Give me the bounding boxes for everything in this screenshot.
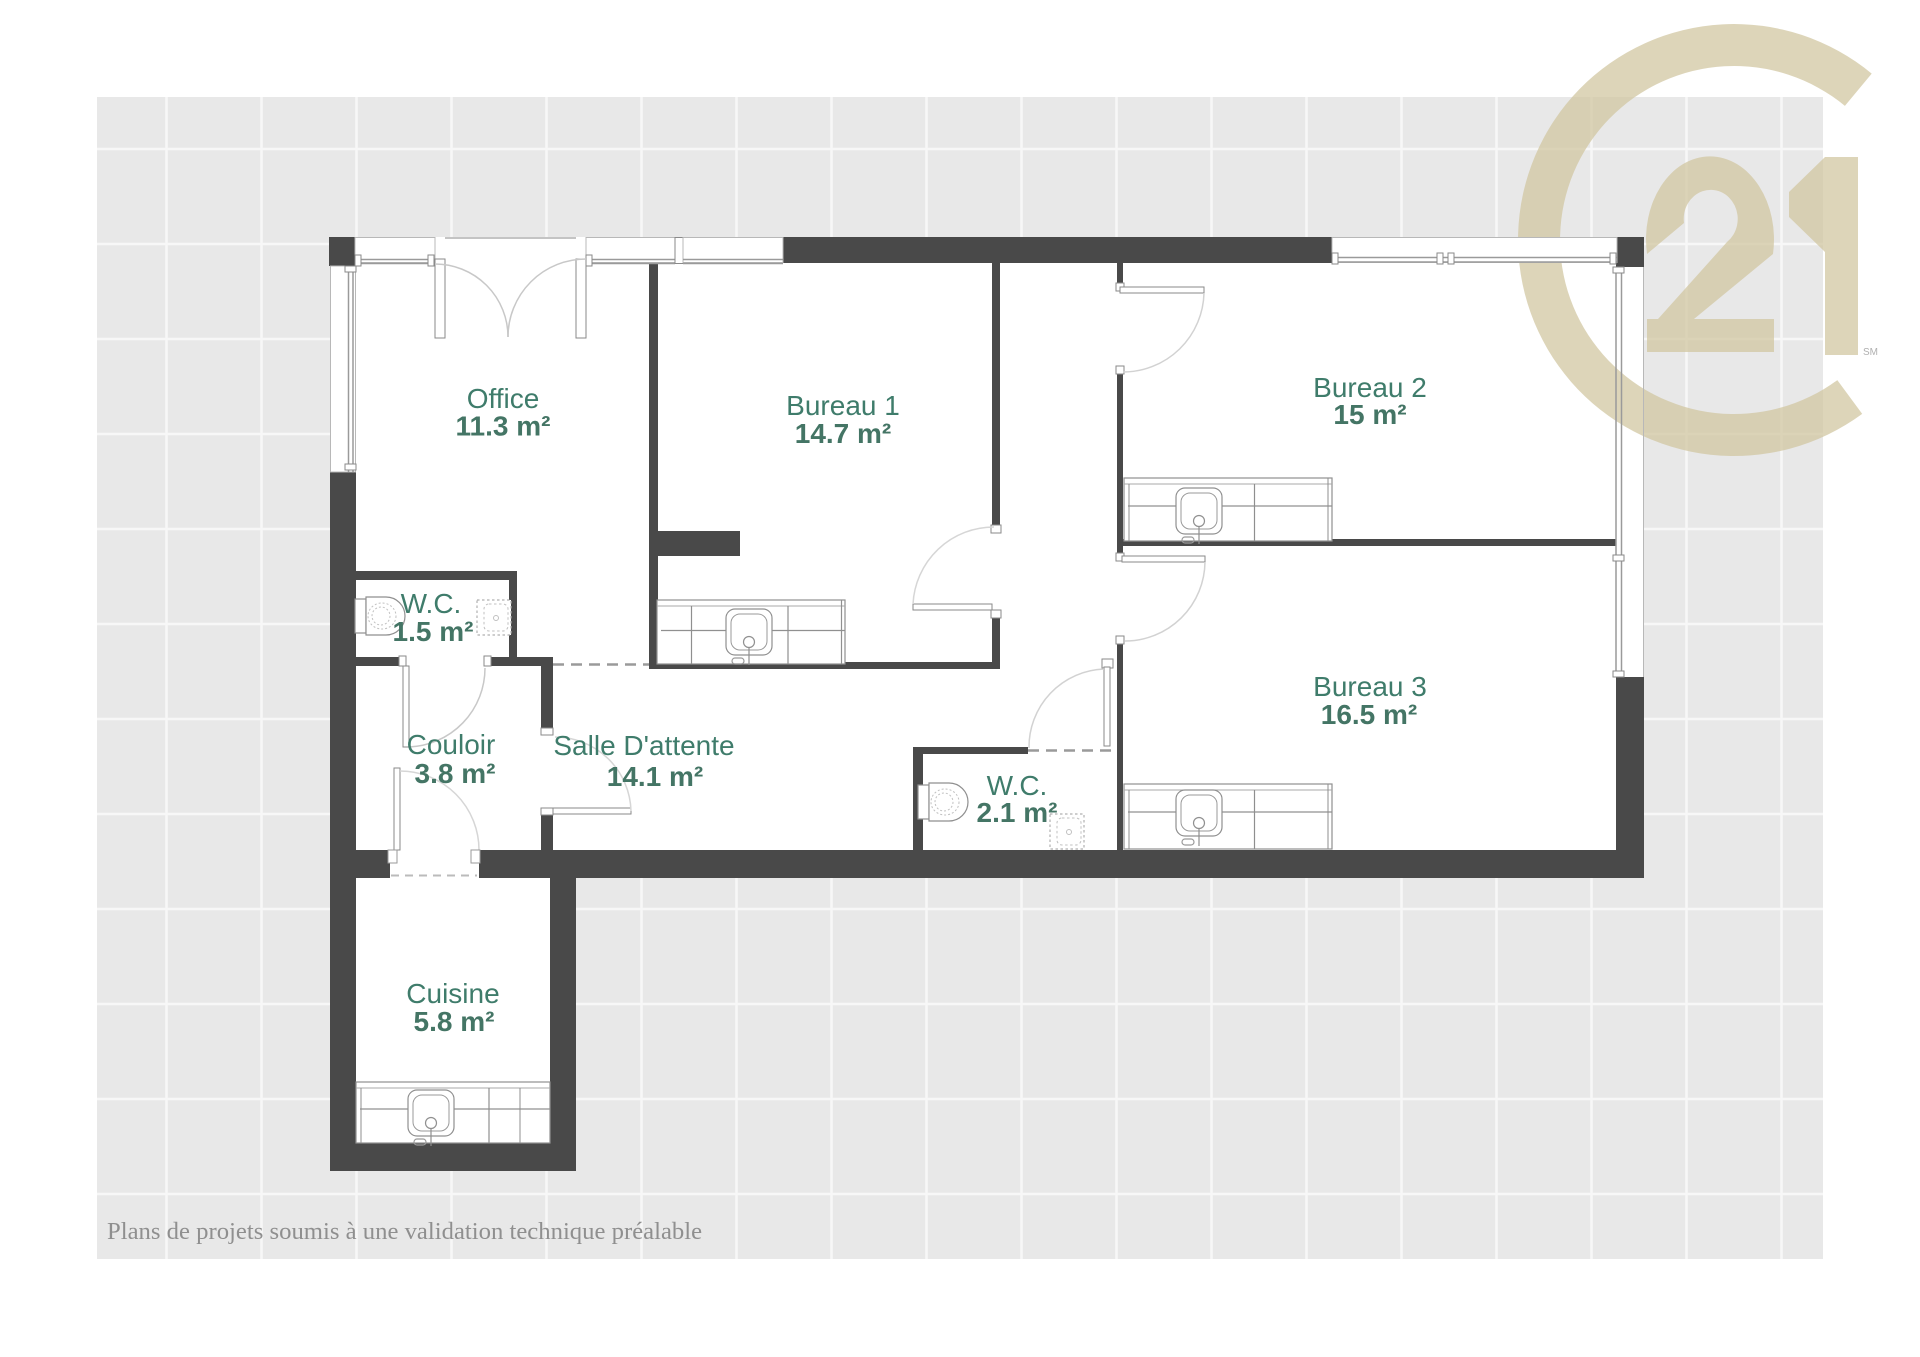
svg-text:1.5 m²: 1.5 m² <box>393 616 474 647</box>
svg-text:W.C.: W.C. <box>401 588 462 619</box>
svg-text:3.8 m²: 3.8 m² <box>415 758 496 789</box>
svg-text:Office: Office <box>467 383 540 414</box>
svg-text:Plans de projets soumis à une: Plans de projets soumis à une validation… <box>107 1218 702 1245</box>
svg-text:SM: SM <box>1863 347 1878 358</box>
svg-text:2.1 m²: 2.1 m² <box>977 797 1058 828</box>
svg-text:15 m²: 15 m² <box>1333 399 1406 430</box>
svg-text:Cuisine: Cuisine <box>406 978 499 1009</box>
svg-text:Couloir: Couloir <box>407 729 496 760</box>
svg-text:11.3 m²: 11.3 m² <box>456 411 551 442</box>
svg-text:14.1 m²: 14.1 m² <box>607 761 704 792</box>
svg-text:5.8 m²: 5.8 m² <box>414 1006 495 1037</box>
svg-text:Bureau 3: Bureau 3 <box>1313 671 1427 702</box>
svg-text:Salle D'attente: Salle D'attente <box>553 730 734 761</box>
svg-text:14.7 m²: 14.7 m² <box>795 418 892 449</box>
svg-text:16.5 m²: 16.5 m² <box>1321 699 1418 730</box>
svg-text:Bureau 1: Bureau 1 <box>786 390 900 421</box>
